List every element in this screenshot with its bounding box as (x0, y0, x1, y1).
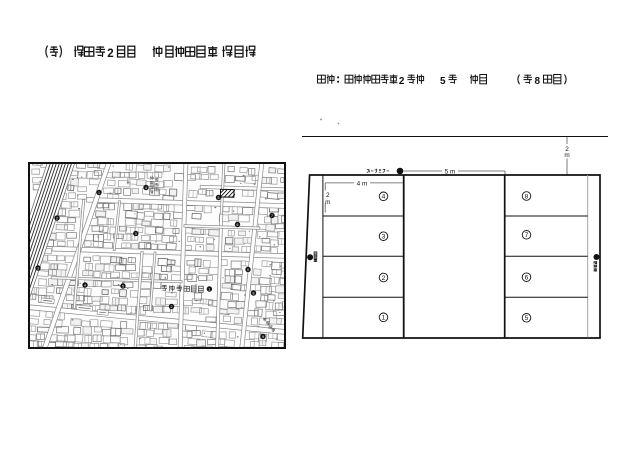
svg-text:4 m: 4 m (357, 180, 368, 187)
svg-text:1: 1 (98, 191, 100, 195)
svg-text:8: 8 (253, 291, 255, 295)
svg-text:2: 2 (399, 76, 405, 87)
svg-text:5: 5 (218, 196, 220, 200)
svg-text:3: 3 (37, 266, 39, 270)
svg-text:5: 5 (440, 76, 446, 87)
svg-text:2: 2 (107, 48, 113, 60)
svg-text:m: m (564, 152, 569, 159)
svg-text:4: 4 (84, 283, 86, 287)
svg-text:0: 0 (247, 268, 249, 272)
svg-text:5: 5 (525, 315, 529, 322)
svg-text:7: 7 (271, 214, 273, 218)
svg-text:2: 2 (56, 216, 58, 220)
svg-text:9: 9 (262, 335, 264, 339)
svg-text:8: 8 (535, 76, 541, 87)
svg-text:6: 6 (237, 223, 239, 227)
svg-text:7: 7 (525, 232, 529, 239)
svg-text:4: 4 (382, 194, 386, 201)
svg-text:2: 2 (382, 275, 386, 282)
svg-text:1: 1 (208, 287, 210, 291)
svg-text:8: 8 (525, 193, 529, 200)
svg-text:4: 4 (145, 186, 147, 190)
svg-text:6: 6 (525, 275, 529, 282)
svg-text:1: 1 (382, 315, 386, 322)
svg-text:3: 3 (135, 232, 137, 236)
svg-text:5: 5 (122, 284, 124, 288)
svg-text:m: m (325, 199, 330, 206)
svg-text:3: 3 (382, 234, 386, 241)
svg-text:2: 2 (171, 305, 173, 309)
